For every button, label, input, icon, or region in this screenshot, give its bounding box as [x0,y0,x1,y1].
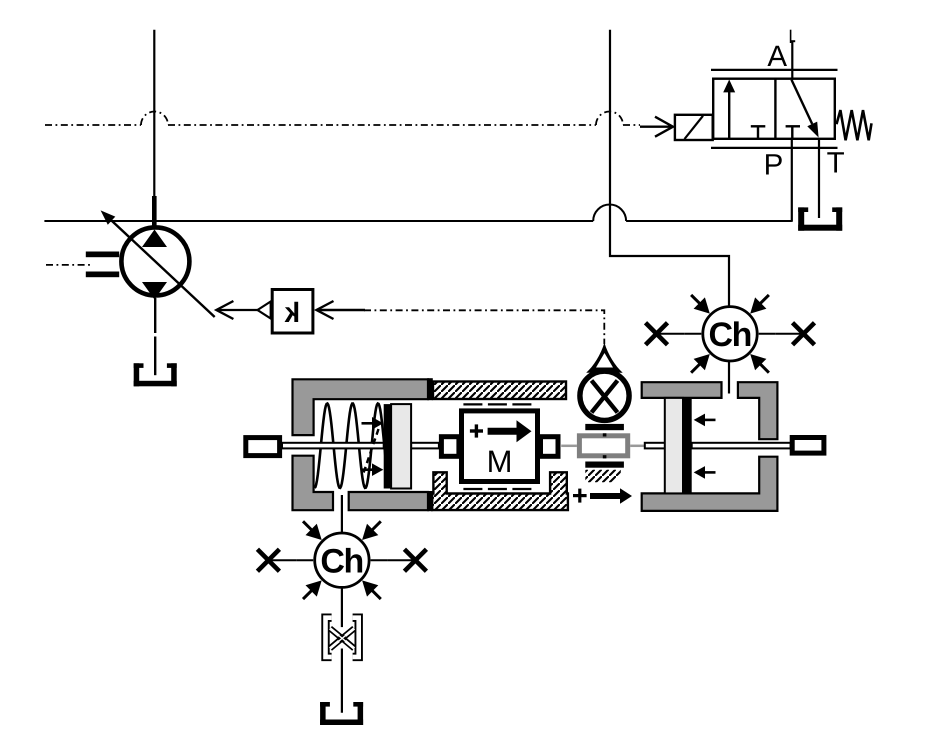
svg-text:P: P [764,149,784,182]
svg-text:Ch: Ch [320,543,362,581]
svg-text:A: A [767,40,787,73]
svg-text:k: k [284,297,300,328]
svg-text:Ch: Ch [709,316,751,354]
svg-text:T: T [827,147,845,180]
svg-text:M: M [487,444,513,479]
